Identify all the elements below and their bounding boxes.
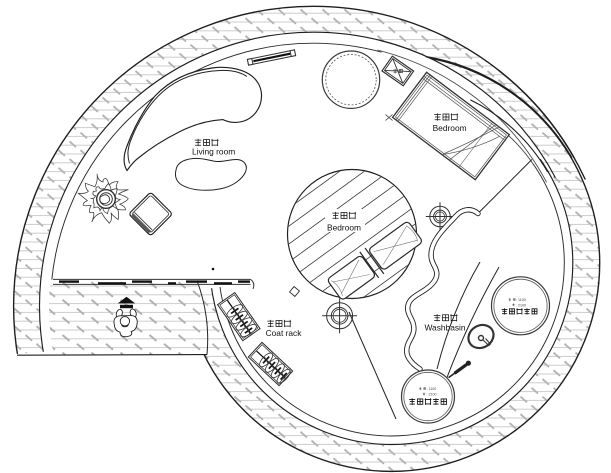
svg-text:: 2100: : 2100 — [427, 392, 437, 396]
svg-text:Living room: Living room — [192, 147, 235, 157]
svg-text:Bedroom: Bedroom — [327, 223, 361, 233]
svg-text:: 2100: : 2100 — [516, 303, 526, 307]
svg-text:Bedroom: Bedroom — [433, 123, 467, 133]
svg-text:Washbasin: Washbasin — [424, 323, 465, 333]
svg-text:: 1100: : 1100 — [427, 387, 437, 391]
svg-text:Coat rack: Coat rack — [266, 328, 303, 338]
svg-text:: 1100: : 1100 — [516, 298, 526, 302]
